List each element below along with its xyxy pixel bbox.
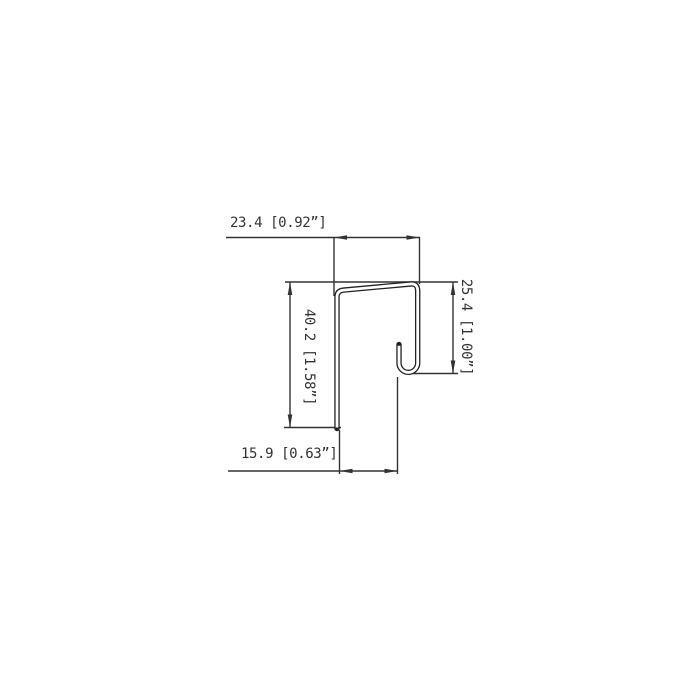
technical-drawing-canvas <box>0 0 700 700</box>
arrowhead-bottom-right <box>385 469 398 474</box>
arrowhead-right-up <box>451 282 456 295</box>
arrowhead-top-right <box>407 235 420 240</box>
arrowhead-right-down <box>451 361 456 374</box>
arrowhead-left-up <box>288 282 293 295</box>
arrowhead-top-left <box>334 235 347 240</box>
drawing-page: 23.4 [0.92”] 40.2 [1.58”] 25.4 [1.00”] 1… <box>0 0 700 700</box>
arrowhead-left-down <box>288 415 293 428</box>
dimension-label-right: 25.4 [1.00”] <box>458 252 474 402</box>
dimension-label-left: 40.2 [1.58”] <box>301 282 317 432</box>
dimension-label-top: 23.4 [0.92”] <box>230 215 326 231</box>
profile-core <box>337 284 418 428</box>
arrowhead-bottom-left <box>340 469 353 474</box>
dimension-label-bottom: 15.9 [0.63”] <box>241 446 337 462</box>
profile-outline <box>337 284 418 429</box>
